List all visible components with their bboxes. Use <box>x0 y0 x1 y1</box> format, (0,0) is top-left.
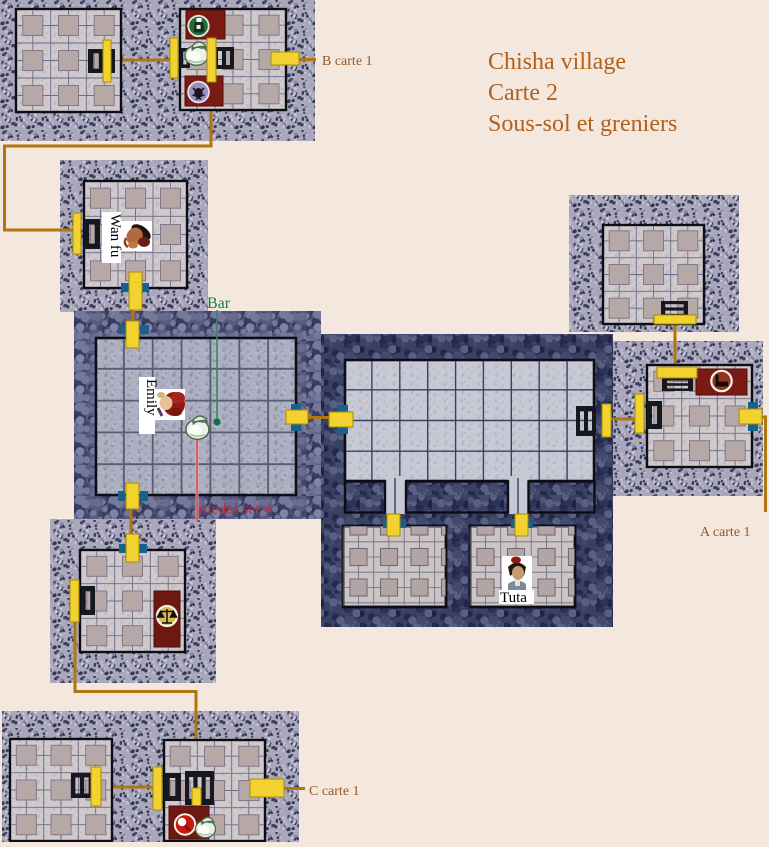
svg-text:Emily: Emily <box>143 379 159 416</box>
svg-text:Tuta: Tuta <box>500 590 527 606</box>
svg-text:Carte 2: Carte 2 <box>488 80 558 106</box>
svg-text:A carte 1: A carte 1 <box>700 525 751 540</box>
svg-text:Wan fu: Wan fu <box>107 214 123 258</box>
svg-text:medal set 4: medal set 4 <box>199 501 272 518</box>
svg-text:B carte 1: B carte 1 <box>322 54 373 69</box>
svg-text:Sous-sol et greniers: Sous-sol et greniers <box>488 111 677 137</box>
svg-text:C carte 1: C carte 1 <box>309 784 360 799</box>
svg-text:Chisha village: Chisha village <box>488 49 626 75</box>
svg-text:Bar: Bar <box>207 295 231 312</box>
